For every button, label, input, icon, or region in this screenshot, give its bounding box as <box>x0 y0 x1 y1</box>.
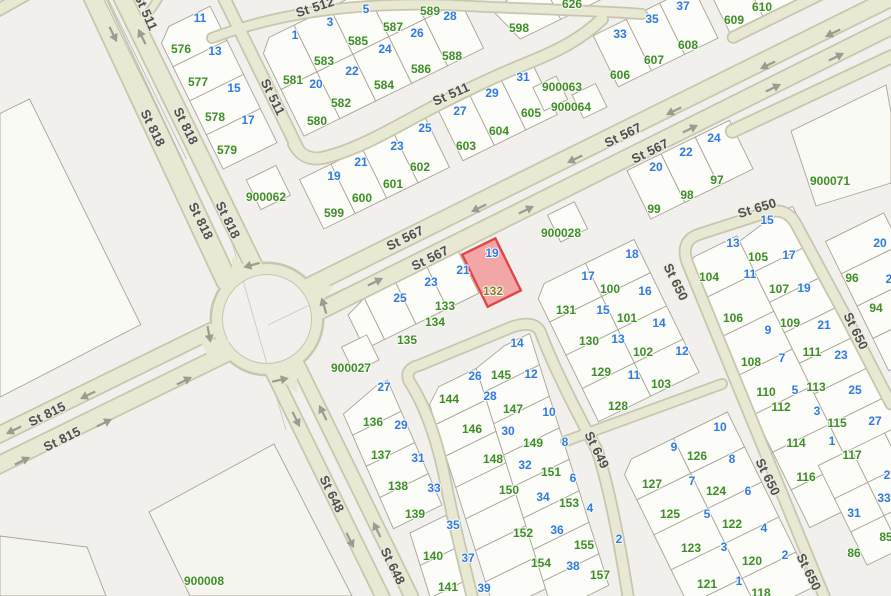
svg-text:577: 577 <box>188 75 208 89</box>
svg-text:137: 137 <box>371 448 391 462</box>
svg-text:1: 1 <box>736 574 743 588</box>
svg-text:108: 108 <box>741 355 761 369</box>
svg-text:99: 99 <box>647 202 661 216</box>
svg-text:1: 1 <box>829 434 836 448</box>
svg-text:129: 129 <box>591 365 611 379</box>
svg-text:6: 6 <box>570 471 577 485</box>
svg-text:19: 19 <box>485 246 499 260</box>
svg-text:607: 607 <box>644 53 664 67</box>
svg-text:152: 152 <box>513 526 533 540</box>
svg-text:132: 132 <box>483 284 503 298</box>
svg-text:85: 85 <box>879 530 891 544</box>
svg-text:116: 116 <box>796 470 816 484</box>
svg-text:8: 8 <box>562 435 569 449</box>
svg-text:37: 37 <box>676 0 690 13</box>
svg-text:14: 14 <box>652 316 666 330</box>
svg-text:28: 28 <box>483 389 497 403</box>
svg-text:24: 24 <box>707 131 721 145</box>
svg-text:151: 151 <box>541 465 561 479</box>
svg-text:900063: 900063 <box>542 80 582 94</box>
svg-text:5: 5 <box>704 507 711 521</box>
svg-text:14: 14 <box>510 336 524 350</box>
svg-text:94: 94 <box>869 301 883 315</box>
svg-text:104: 104 <box>699 270 719 284</box>
svg-text:3: 3 <box>814 404 821 418</box>
svg-text:153: 153 <box>559 496 579 510</box>
svg-text:3: 3 <box>721 540 728 554</box>
svg-text:133: 133 <box>435 299 455 313</box>
svg-text:26: 26 <box>410 26 424 40</box>
svg-text:20: 20 <box>649 160 663 174</box>
svg-text:157: 157 <box>590 568 610 582</box>
svg-text:1: 1 <box>292 28 299 42</box>
svg-text:107: 107 <box>769 282 789 296</box>
svg-text:31: 31 <box>847 506 861 520</box>
svg-text:13: 13 <box>726 236 740 250</box>
svg-text:35: 35 <box>446 518 460 532</box>
svg-text:101: 101 <box>617 311 637 325</box>
svg-text:581: 581 <box>283 73 303 87</box>
svg-text:5: 5 <box>792 383 799 397</box>
svg-text:21: 21 <box>456 263 470 277</box>
svg-text:21: 21 <box>817 318 831 332</box>
svg-text:141: 141 <box>438 580 458 594</box>
svg-text:29: 29 <box>394 418 408 432</box>
svg-text:28: 28 <box>443 9 457 23</box>
svg-text:144: 144 <box>439 392 459 406</box>
svg-text:109: 109 <box>780 316 800 330</box>
svg-text:20: 20 <box>309 77 323 91</box>
svg-text:111: 111 <box>803 345 822 359</box>
svg-text:584: 584 <box>374 78 394 92</box>
svg-text:610: 610 <box>752 0 772 14</box>
svg-text:587: 587 <box>383 20 403 34</box>
svg-text:602: 602 <box>410 160 430 174</box>
svg-text:6: 6 <box>745 484 752 498</box>
svg-text:25: 25 <box>393 291 407 305</box>
svg-text:7: 7 <box>779 351 786 365</box>
svg-text:626: 626 <box>562 0 582 11</box>
svg-text:155: 155 <box>574 538 594 552</box>
svg-text:2: 2 <box>782 548 789 562</box>
svg-text:117: 117 <box>842 448 862 462</box>
svg-text:30: 30 <box>501 424 515 438</box>
svg-text:582: 582 <box>331 96 351 110</box>
svg-text:100: 100 <box>600 282 620 296</box>
svg-text:34: 34 <box>536 490 550 504</box>
svg-text:106: 106 <box>723 311 743 325</box>
svg-text:136: 136 <box>363 415 383 429</box>
svg-text:17: 17 <box>241 113 255 127</box>
svg-text:900028: 900028 <box>541 226 581 240</box>
svg-text:154: 154 <box>531 556 551 570</box>
svg-text:11: 11 <box>628 368 641 382</box>
svg-text:33: 33 <box>877 491 891 505</box>
svg-text:115: 115 <box>827 416 847 430</box>
svg-text:26: 26 <box>468 369 482 383</box>
svg-text:21: 21 <box>354 155 368 169</box>
svg-text:15: 15 <box>596 303 610 317</box>
svg-text:601: 601 <box>383 177 403 191</box>
svg-text:86: 86 <box>847 546 861 560</box>
svg-text:580: 580 <box>307 114 327 128</box>
svg-text:27: 27 <box>377 380 391 394</box>
svg-text:19: 19 <box>327 169 341 183</box>
svg-text:576: 576 <box>171 42 191 56</box>
svg-text:29: 29 <box>485 86 499 100</box>
svg-text:900008: 900008 <box>184 574 224 588</box>
svg-text:7: 7 <box>689 474 696 488</box>
svg-text:900027: 900027 <box>331 361 371 375</box>
svg-text:22: 22 <box>679 145 693 159</box>
svg-text:32: 32 <box>518 458 532 472</box>
svg-text:609: 609 <box>724 13 744 27</box>
svg-text:131: 131 <box>556 303 576 317</box>
svg-text:96: 96 <box>845 271 859 285</box>
svg-text:900071: 900071 <box>810 174 850 188</box>
svg-text:19: 19 <box>797 281 811 295</box>
svg-text:9: 9 <box>671 440 678 454</box>
svg-text:27: 27 <box>868 414 882 428</box>
svg-text:4: 4 <box>587 501 594 515</box>
svg-text:121: 121 <box>697 577 717 591</box>
svg-text:139: 139 <box>405 507 425 521</box>
svg-text:113: 113 <box>806 380 826 394</box>
svg-text:10: 10 <box>542 405 556 419</box>
svg-text:604: 604 <box>489 124 509 138</box>
svg-text:586: 586 <box>411 62 431 76</box>
svg-text:124: 124 <box>706 484 726 498</box>
svg-text:2: 2 <box>884 468 891 482</box>
svg-text:16: 16 <box>638 284 652 298</box>
svg-text:125: 125 <box>660 507 680 521</box>
svg-text:110: 110 <box>756 385 776 399</box>
svg-text:148: 148 <box>483 452 503 466</box>
svg-text:37: 37 <box>461 551 475 565</box>
svg-text:600: 600 <box>352 191 372 205</box>
svg-text:13: 13 <box>611 332 625 346</box>
svg-text:39: 39 <box>477 581 491 595</box>
svg-text:12: 12 <box>524 367 538 381</box>
svg-text:140: 140 <box>423 549 443 563</box>
svg-text:36: 36 <box>550 523 564 537</box>
svg-text:11: 11 <box>744 267 757 281</box>
svg-text:606: 606 <box>610 68 630 82</box>
svg-text:588: 588 <box>442 49 462 63</box>
svg-text:120: 120 <box>742 554 762 568</box>
svg-text:608: 608 <box>678 38 698 52</box>
svg-text:149: 149 <box>523 436 543 450</box>
svg-text:138: 138 <box>388 479 408 493</box>
svg-text:38: 38 <box>566 559 580 573</box>
svg-text:585: 585 <box>348 34 368 48</box>
svg-text:114: 114 <box>786 436 806 450</box>
svg-text:135: 135 <box>397 333 417 347</box>
svg-text:3: 3 <box>327 15 334 29</box>
svg-text:15: 15 <box>760 213 774 227</box>
svg-text:2: 2 <box>616 532 623 546</box>
svg-text:150: 150 <box>499 483 519 497</box>
svg-text:605: 605 <box>521 106 541 120</box>
svg-text:589: 589 <box>420 4 440 18</box>
svg-text:4: 4 <box>761 521 768 535</box>
svg-text:2: 2 <box>886 272 891 286</box>
svg-text:578: 578 <box>205 110 225 124</box>
svg-text:23: 23 <box>424 275 438 289</box>
svg-text:579: 579 <box>217 143 237 157</box>
svg-text:15: 15 <box>227 81 241 95</box>
svg-text:17: 17 <box>581 269 595 283</box>
svg-text:118: 118 <box>751 586 771 596</box>
svg-text:9: 9 <box>765 323 772 337</box>
svg-text:900062: 900062 <box>246 190 286 204</box>
svg-text:105: 105 <box>748 250 768 264</box>
svg-text:97: 97 <box>710 173 724 187</box>
svg-text:127: 127 <box>642 477 662 491</box>
svg-text:122: 122 <box>722 517 742 531</box>
svg-text:603: 603 <box>456 139 476 153</box>
svg-text:126: 126 <box>687 449 707 463</box>
svg-text:18: 18 <box>625 247 639 261</box>
svg-text:102: 102 <box>633 345 653 359</box>
svg-text:145: 145 <box>491 368 511 382</box>
svg-text:583: 583 <box>314 54 334 68</box>
svg-text:8: 8 <box>729 452 736 466</box>
svg-text:123: 123 <box>681 541 701 555</box>
svg-text:31: 31 <box>411 451 425 465</box>
svg-text:35: 35 <box>645 12 659 26</box>
svg-text:23: 23 <box>834 348 848 362</box>
svg-text:5: 5 <box>363 2 370 16</box>
svg-text:599: 599 <box>324 206 344 220</box>
svg-text:17: 17 <box>782 248 796 262</box>
svg-text:147: 147 <box>503 402 523 416</box>
svg-text:33: 33 <box>427 481 441 495</box>
svg-text:11: 11 <box>194 11 207 25</box>
svg-text:31: 31 <box>516 70 530 84</box>
svg-text:598: 598 <box>509 21 529 35</box>
svg-text:134: 134 <box>425 315 445 329</box>
svg-text:103: 103 <box>651 377 671 391</box>
svg-text:98: 98 <box>680 188 694 202</box>
svg-text:12: 12 <box>675 344 689 358</box>
svg-text:130: 130 <box>579 334 599 348</box>
svg-text:900064: 900064 <box>551 100 591 114</box>
svg-text:13: 13 <box>208 44 222 58</box>
svg-text:25: 25 <box>848 383 862 397</box>
svg-text:128: 128 <box>608 399 628 413</box>
svg-text:33: 33 <box>613 27 627 41</box>
svg-text:25: 25 <box>418 121 432 135</box>
svg-text:10: 10 <box>713 420 727 434</box>
svg-text:20: 20 <box>873 236 887 250</box>
svg-text:22: 22 <box>345 64 359 78</box>
svg-text:112: 112 <box>771 400 791 414</box>
svg-text:146: 146 <box>462 422 482 436</box>
svg-text:24: 24 <box>378 42 392 56</box>
svg-text:23: 23 <box>390 139 404 153</box>
svg-text:27: 27 <box>453 104 467 118</box>
